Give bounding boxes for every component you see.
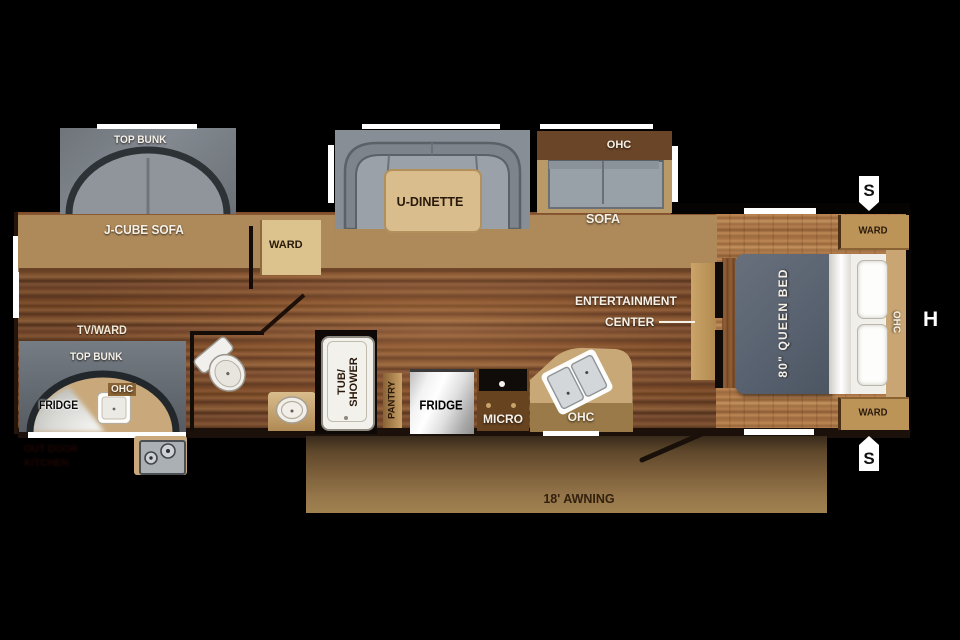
svg-text:S: S bbox=[863, 449, 874, 468]
svg-text:S: S bbox=[863, 181, 874, 200]
